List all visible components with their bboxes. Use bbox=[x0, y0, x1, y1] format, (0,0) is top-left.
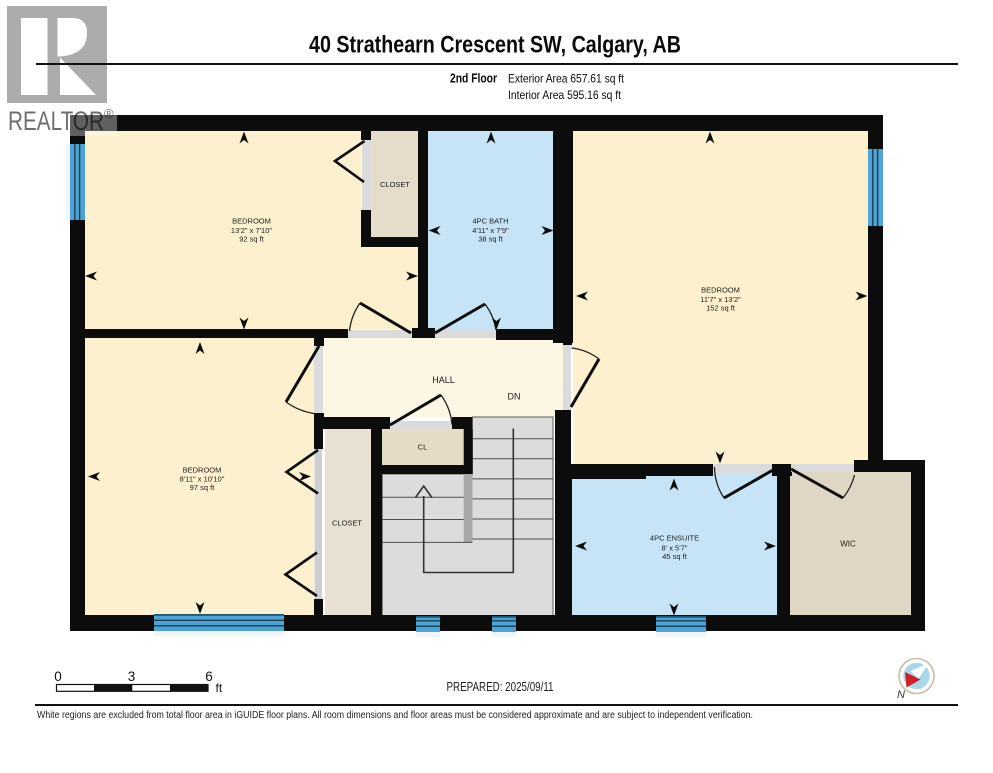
svg-text:BEDROOM: BEDROOM bbox=[183, 466, 222, 475]
svg-text:®: ® bbox=[104, 106, 114, 121]
svg-text:Interior Area 595.16 sq ft: Interior Area 595.16 sq ft bbox=[508, 88, 622, 102]
svg-text:WIC: WIC bbox=[840, 540, 856, 549]
svg-text:HALL: HALL bbox=[432, 375, 455, 385]
svg-text:CLOSET: CLOSET bbox=[380, 180, 410, 189]
svg-text:BEDROOM: BEDROOM bbox=[701, 286, 740, 295]
svg-text:Exterior Area 657.61 sq ft: Exterior Area 657.61 sq ft bbox=[508, 72, 625, 86]
svg-text:CLOSET: CLOSET bbox=[332, 519, 362, 528]
svg-text:PREPARED: 2025/09/11: PREPARED: 2025/09/11 bbox=[447, 680, 554, 694]
svg-text:92 sq ft: 92 sq ft bbox=[239, 235, 265, 244]
svg-text:6: 6 bbox=[205, 669, 213, 684]
svg-text:0: 0 bbox=[54, 669, 62, 684]
svg-text:ft: ft bbox=[216, 681, 223, 695]
svg-text:White regions are excluded fro: White regions are excluded from total fl… bbox=[37, 710, 753, 721]
svg-text:2nd Floor: 2nd Floor bbox=[450, 72, 497, 86]
svg-text:CL: CL bbox=[418, 443, 428, 452]
svg-text:3: 3 bbox=[128, 669, 136, 684]
svg-text:4PC BATH: 4PC BATH bbox=[472, 217, 508, 226]
svg-text:4PC ENSUITE: 4PC ENSUITE bbox=[650, 534, 699, 543]
svg-text:45 sq ft: 45 sq ft bbox=[662, 552, 688, 561]
svg-text:BEDROOM: BEDROOM bbox=[232, 217, 271, 226]
svg-text:DN: DN bbox=[508, 392, 521, 402]
svg-text:97 sq ft: 97 sq ft bbox=[190, 483, 216, 492]
svg-text:N: N bbox=[897, 689, 905, 701]
svg-text:REALTOR: REALTOR bbox=[8, 106, 104, 136]
svg-text:38 sq ft: 38 sq ft bbox=[478, 235, 504, 244]
svg-text:40 Strathearn Crescent SW, Cal: 40 Strathearn Crescent SW, Calgary, AB bbox=[309, 32, 681, 59]
svg-text:152 sq ft: 152 sq ft bbox=[706, 304, 736, 313]
